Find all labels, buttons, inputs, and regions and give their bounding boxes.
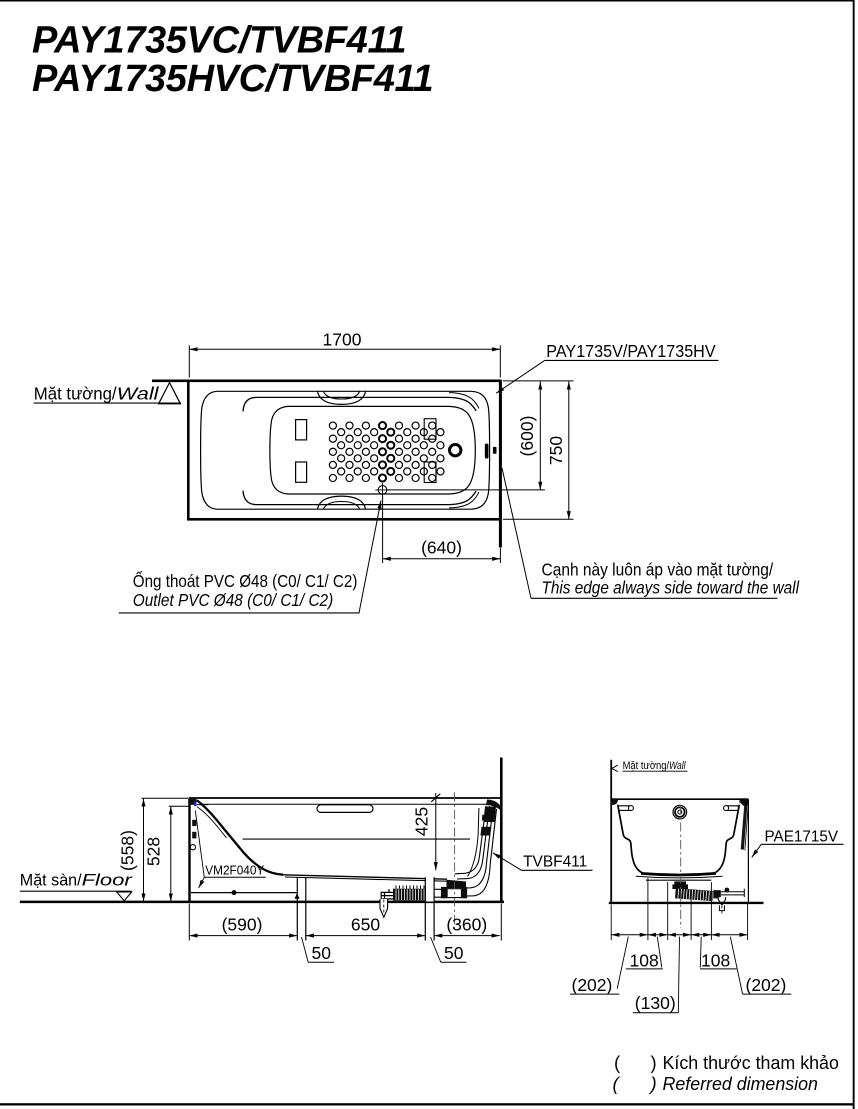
svg-text:750: 750 — [546, 436, 566, 465]
svg-text:(130): (130) — [635, 993, 676, 1013]
svg-text:Mặt tường/: Mặt tường/ — [34, 384, 117, 404]
svg-text:Ống thoát PVC Ø48 (C0/ C1/ C2): Ống thoát PVC Ø48 (C0/ C1/ C2) — [133, 570, 358, 591]
svg-text:Mặt sàn/: Mặt sàn/ — [20, 872, 82, 890]
svg-text:VM2F040Y: VM2F040Y — [205, 864, 265, 878]
svg-text:(202): (202) — [746, 975, 787, 995]
svg-text:50: 50 — [444, 943, 464, 963]
svg-text:(558): (558) — [118, 830, 138, 871]
svg-text:1700: 1700 — [323, 330, 362, 350]
svg-text:108: 108 — [630, 950, 659, 970]
svg-text:TVBF411: TVBF411 — [523, 854, 587, 871]
svg-text:PAY1735VC/TVBF411: PAY1735VC/TVBF411 — [32, 20, 406, 62]
svg-text:PAY1735HVC/TVBF411: PAY1735HVC/TVBF411 — [32, 58, 433, 100]
svg-text:Mặt tường/: Mặt tường/ — [623, 760, 670, 772]
svg-text:(202): (202) — [572, 975, 613, 995]
svg-text:50: 50 — [312, 943, 332, 963]
svg-text:PAE1715V: PAE1715V — [765, 829, 839, 846]
svg-text:Wall: Wall — [669, 760, 686, 772]
svg-text:Cạnh này luôn áp vào mặt tường: Cạnh này luôn áp vào mặt tường/ — [542, 560, 774, 580]
svg-text:425: 425 — [412, 807, 432, 836]
svg-text:Outlet PVC Ø48 (C0/ C1/ C2): Outlet PVC Ø48 (C0/ C1/ C2) — [133, 590, 333, 610]
svg-text:()Kích thước tham khảo: ()Kích thước tham khảo — [614, 1052, 839, 1073]
svg-text:Wall: Wall — [117, 384, 160, 404]
svg-text:(360): (360) — [446, 915, 487, 935]
svg-text:108: 108 — [701, 950, 730, 970]
svg-text:Floor: Floor — [82, 872, 134, 890]
svg-text:650: 650 — [351, 915, 380, 935]
svg-text:()Referred dimension: ()Referred dimension — [613, 1073, 818, 1094]
svg-text:(640): (640) — [421, 537, 462, 557]
svg-text:(590): (590) — [222, 915, 263, 935]
svg-text:This edge always side toward t: This edge always side toward the wall — [542, 578, 800, 598]
svg-text:(600): (600) — [517, 416, 537, 457]
svg-text:528: 528 — [144, 837, 164, 866]
svg-text:PAY1735V/PAY1735HV: PAY1735V/PAY1735HV — [546, 341, 716, 361]
